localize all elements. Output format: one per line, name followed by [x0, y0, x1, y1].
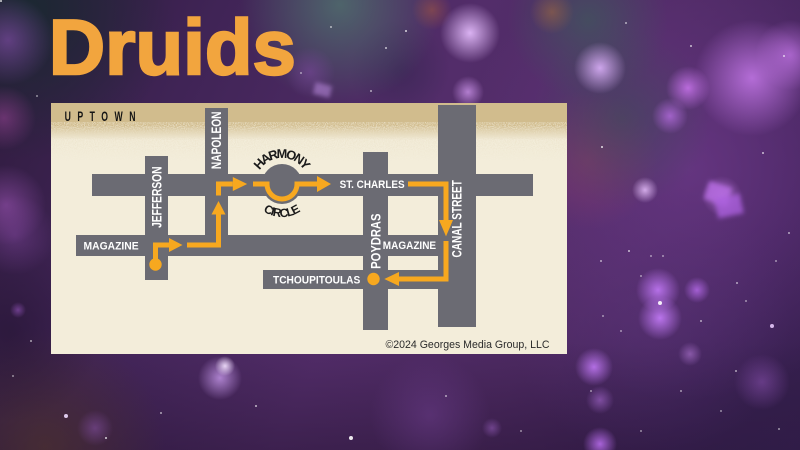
svg-text:NAPOLEON: NAPOLEON	[209, 112, 225, 170]
svg-text:©2024 Georges Media Group, LLC: ©2024 Georges Media Group, LLC	[386, 339, 550, 351]
svg-text:MAGAZINE: MAGAZINE	[84, 240, 139, 253]
svg-text:CANAL STREET: CANAL STREET	[449, 180, 465, 258]
svg-text:ST. CHARLES: ST. CHARLES	[340, 178, 405, 191]
svg-text:UPTOWN: UPTOWN	[65, 109, 142, 125]
svg-text:POYDRAS: POYDRAS	[368, 214, 383, 269]
svg-text:JEFFERSON: JEFFERSON	[149, 167, 165, 228]
svg-text:CIRCLE: CIRCLE	[262, 202, 303, 221]
svg-text:TCHOUPITOULAS: TCHOUPITOULAS	[273, 274, 360, 287]
svg-text:MAGAZINE: MAGAZINE	[383, 239, 436, 252]
